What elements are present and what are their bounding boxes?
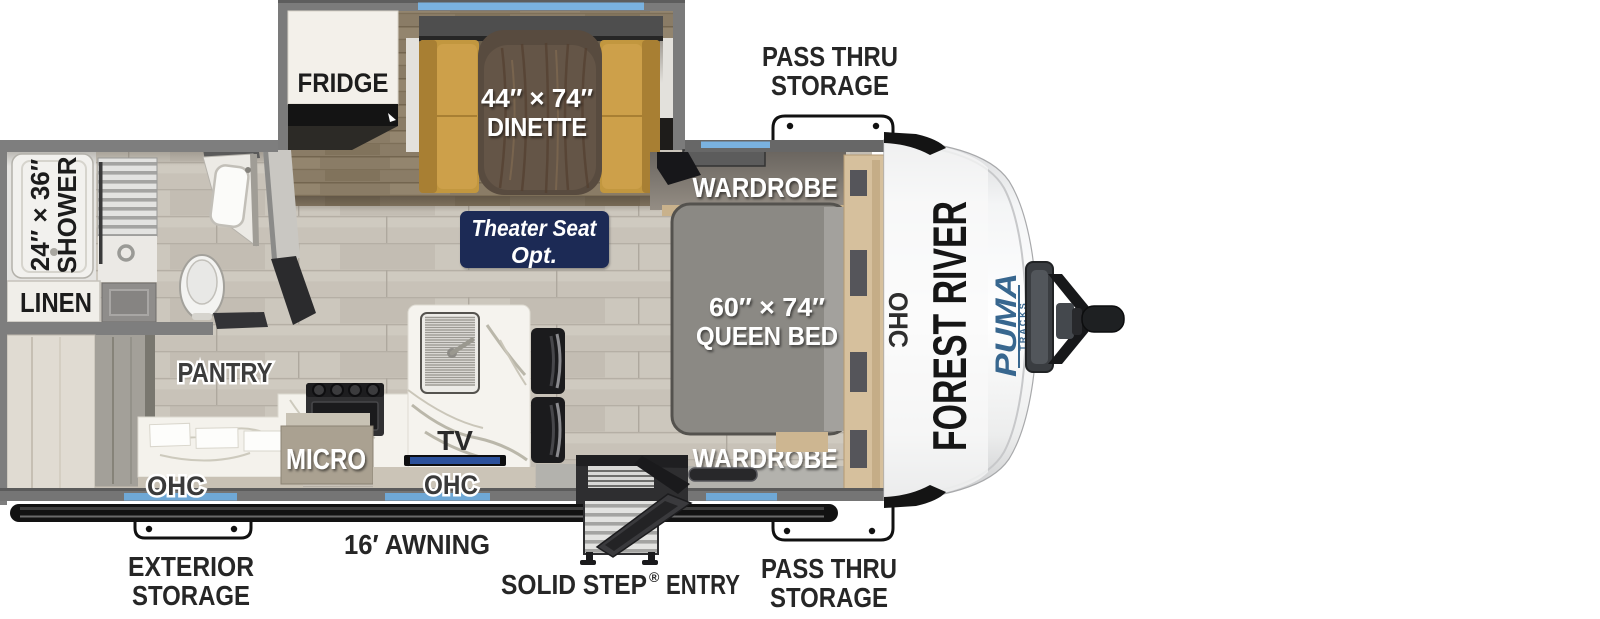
- svg-text:EXTERIOR: EXTERIOR: [128, 551, 254, 582]
- svg-text:Theater Seat: Theater Seat: [472, 215, 598, 241]
- svg-text:OHC: OHC: [883, 292, 913, 348]
- svg-text:ENTRY: ENTRY: [666, 569, 740, 600]
- svg-text:OHC: OHC: [147, 471, 205, 501]
- svg-text:STORAGE: STORAGE: [132, 580, 250, 611]
- svg-text:TV: TV: [437, 425, 473, 456]
- svg-text:Opt.: Opt.: [511, 242, 557, 268]
- svg-text:PASS THRU: PASS THRU: [761, 553, 897, 584]
- svg-text:60″ × 74″: 60″ × 74″: [709, 292, 825, 322]
- svg-text:PASS THRU: PASS THRU: [762, 41, 898, 72]
- svg-text:FRIDGE: FRIDGE: [298, 68, 389, 98]
- svg-text:LINEN: LINEN: [20, 287, 92, 318]
- svg-text:®: ®: [649, 569, 660, 585]
- svg-text:OHC: OHC: [424, 470, 478, 500]
- svg-text:WARDROBE: WARDROBE: [693, 172, 838, 203]
- svg-text:PANTRY: PANTRY: [178, 357, 273, 388]
- svg-text:FOREST RIVER: FOREST RIVER: [923, 201, 976, 451]
- svg-text:DINETTE: DINETTE: [487, 112, 587, 142]
- svg-text:STORAGE: STORAGE: [771, 70, 889, 101]
- svg-text:24″ × 36″: 24″ × 36″: [25, 159, 55, 271]
- svg-text:44″ × 74″: 44″ × 74″: [481, 83, 593, 113]
- svg-text:STORAGE: STORAGE: [770, 582, 888, 613]
- svg-text:16′ AWNING: 16′ AWNING: [344, 529, 490, 560]
- svg-text:SOLID STEP: SOLID STEP: [501, 569, 647, 600]
- svg-text:MICRO: MICRO: [286, 444, 366, 476]
- svg-text:SHOWER: SHOWER: [52, 156, 82, 273]
- svg-text:QUEEN BED: QUEEN BED: [696, 321, 838, 351]
